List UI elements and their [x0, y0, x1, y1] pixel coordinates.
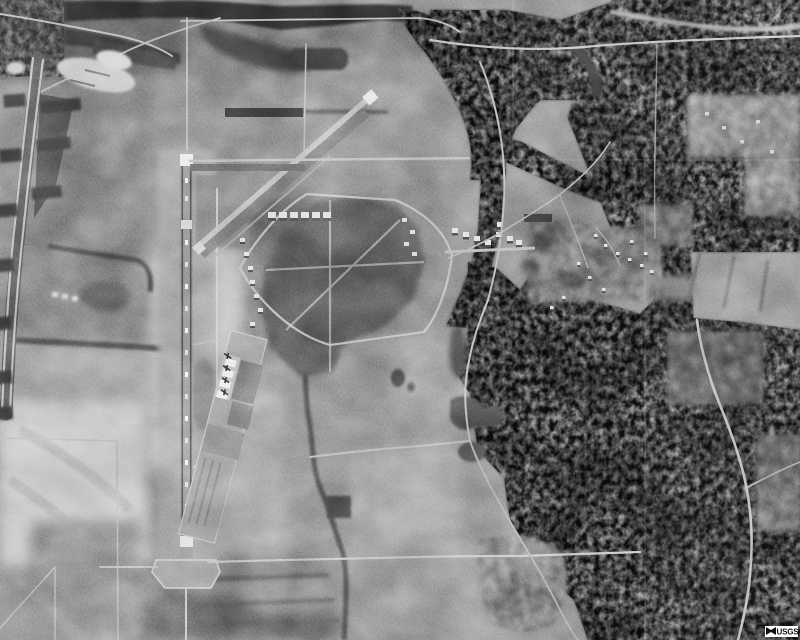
svg-text:USGS: USGS [777, 628, 800, 637]
